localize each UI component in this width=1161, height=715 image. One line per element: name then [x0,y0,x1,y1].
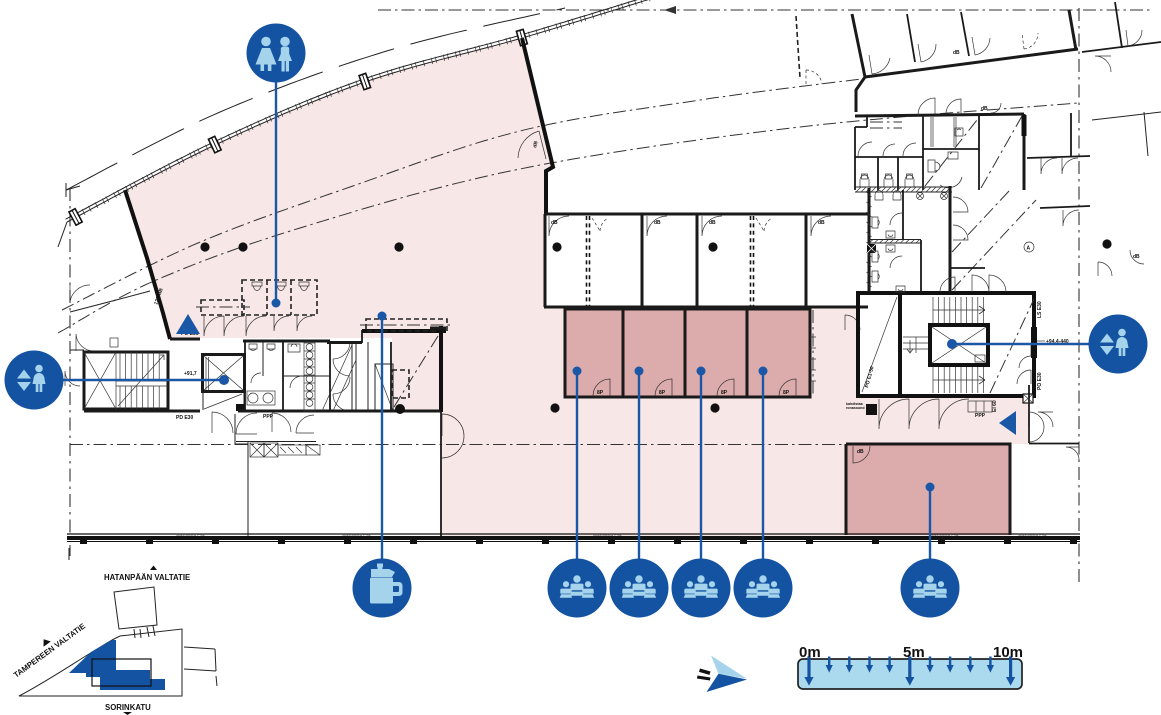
svg-text:dB: dB [551,220,558,226]
svg-text:SIIVOUS 2.1 m2: SIIVOUS 2.1 m2 [866,292,891,296]
svg-text:dB: dB [981,106,988,112]
svg-text:JULKISIVU PSL: JULKISIVU PSL [176,532,206,537]
svg-text:JULKISIVU PSL: JULKISIVU PSL [1018,532,1048,537]
svg-text:PPP: PPP [975,413,986,419]
svg-text:8P: 8P [659,390,666,396]
svg-text:+91,7: +91,7 [184,371,197,377]
svg-text:8P: 8P [721,390,728,396]
svg-text:JULKISIVU PSL: JULKISIVU PSL [593,532,623,537]
svg-text:dB: dB [1133,254,1140,260]
svg-text:0m: 0m [799,644,821,661]
svg-text:PPP: PPP [263,414,274,420]
svg-text:ronasound: ronasound [846,406,865,410]
svg-text:dB: dB [953,50,960,56]
svg-text:dB: dB [709,220,716,226]
svg-text:dB: dB [818,220,825,226]
svg-text:dB: dB [857,449,864,455]
svg-text:PO E30: PO E30 [1037,372,1043,390]
svg-text:A: A [1027,246,1031,252]
svg-text:8P: 8P [597,390,604,396]
svg-text:JULKISIVU PSL: JULKISIVU PSL [930,532,960,537]
svg-text:5m: 5m [903,644,925,661]
svg-text:SORINKATU: SORINKATU [105,703,151,712]
svg-text:10m: 10m [993,644,1023,661]
svg-text:8P: 8P [783,390,790,396]
svg-text:dB: dB [654,220,661,226]
svg-text:EI 60: EI 60 [992,400,998,412]
svg-text:HATANPÄÄN VALTATIE: HATANPÄÄN VALTATIE [104,573,190,582]
svg-text:LS E30: LS E30 [1037,301,1043,318]
svg-text:PD E30: PD E30 [176,415,193,421]
svg-text:JULKISIVU PSL: JULKISIVU PSL [342,532,372,537]
